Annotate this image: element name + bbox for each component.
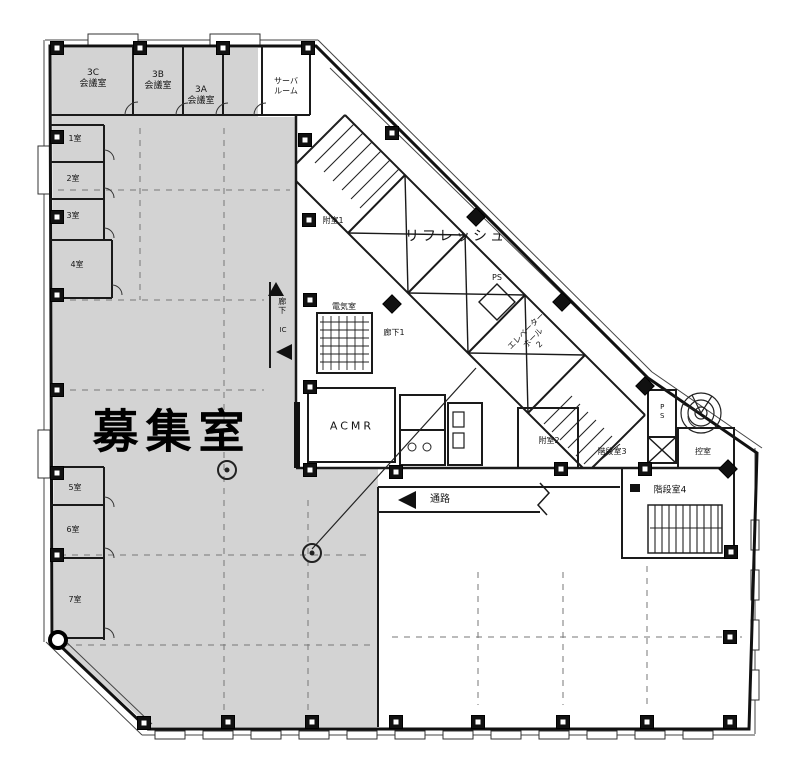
label-ic: IC	[280, 326, 287, 334]
label-acmr: ACMR	[330, 419, 374, 432]
passage-arrow-icon	[398, 491, 416, 509]
room-3c-name: 会議室	[79, 79, 106, 90]
label-pipe-shaft-right: PS	[658, 403, 666, 421]
elevator-shaft-x-marks	[348, 175, 585, 413]
label-room-7: 7室	[68, 595, 81, 605]
label-room-3: 3室	[66, 211, 79, 221]
label-refresh-area: リフレッシュ	[405, 229, 507, 246]
server-room-line2: ルーム	[274, 86, 298, 96]
electrical-equipment-hatch	[320, 316, 369, 370]
floor-plan-screenshot: 3C 会議室 3B 会議室 3A 会議室 サーバ ルーム 1室 2室 3室 4室…	[0, 0, 787, 774]
label-room-2: 2室	[66, 174, 79, 184]
label-vacant-room: 募集室	[93, 404, 252, 459]
label-passage: 通路	[430, 494, 450, 506]
label-anteroom: 控室	[695, 447, 711, 457]
room-3a-name: 会議室	[187, 96, 214, 107]
label-stairwell-3: 階段室3	[597, 447, 626, 457]
label-meeting-room-3a: 3A 会議室	[187, 85, 214, 107]
column-diamonds	[383, 208, 737, 478]
room-3b-number: 3B	[144, 70, 171, 81]
label-room-6: 6室	[66, 525, 79, 535]
label-corridor-1: 廊下1	[383, 328, 404, 338]
label-vestibule-2: 附室2	[538, 436, 559, 446]
label-corridor: 廊下	[277, 297, 287, 315]
room-3c-number: 3C	[79, 68, 106, 79]
label-room-5: 5室	[68, 483, 81, 493]
label-meeting-room-3b: 3B 会議室	[144, 70, 171, 92]
label-room-4: 4室	[70, 260, 83, 270]
server-room-line1: サーバ	[274, 76, 298, 86]
floor-plan-drawing	[0, 0, 787, 774]
label-stairwell-4: 階段室4	[654, 486, 687, 497]
round-column	[50, 632, 66, 648]
label-vestibule-1: 附室1	[322, 216, 343, 226]
label-meeting-room-3c: 3C 会議室	[79, 68, 106, 90]
label-room-1: 1室	[68, 134, 81, 144]
label-pipe-shaft-upper: PS	[492, 273, 502, 283]
label-electrical-room: 電気室	[332, 302, 356, 312]
room-3a-number: 3A	[187, 85, 214, 96]
label-server-room: サーバ ルーム	[274, 76, 298, 95]
room-3b-name: 会議室	[144, 81, 171, 92]
